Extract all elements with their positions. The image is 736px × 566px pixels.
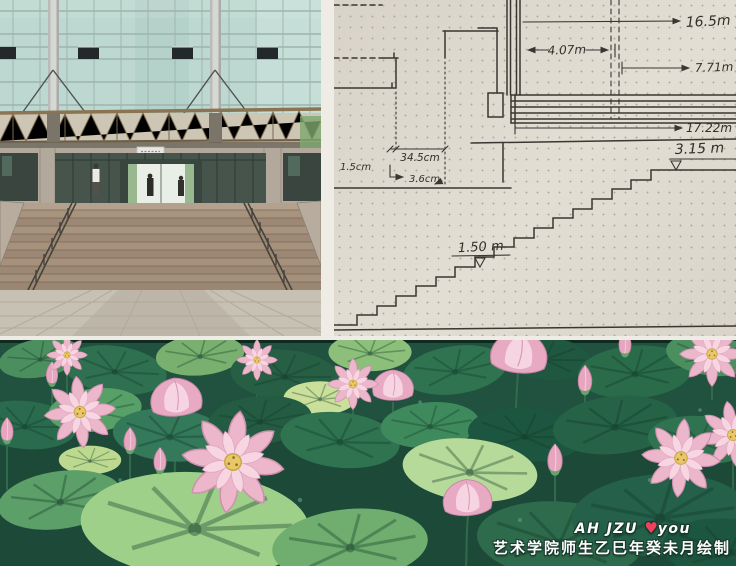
collage-gutter-vertical: [321, 0, 334, 336]
dim-label-mid-span: 7.71m: [695, 60, 734, 75]
building-photo-panel: [0, 0, 321, 336]
level-mid: 1.50 m: [452, 239, 510, 267]
dim-label-tread: 34.5cm: [400, 152, 439, 164]
measurement-sketch-art: 16.5m 4.07m 7.71m 17.22m 3.15: [334, 0, 736, 336]
plaza-pavement: [0, 290, 321, 336]
level-upper: 3.15 m: [670, 140, 736, 170]
building-photo-art: [0, 0, 321, 336]
level-label-mid: 1.50 m: [458, 239, 504, 256]
photo-collage: 16.5m 4.07m 7.71m 17.22m 3.15: [0, 0, 736, 566]
level-label-upper: 3.15 m: [675, 140, 725, 158]
level-marker-icon: [671, 161, 681, 170]
mural-caption-line1: AH JZU ♥you: [493, 519, 731, 539]
stair-profile-drawing: [334, 170, 736, 330]
entrance-canopy: [0, 109, 321, 150]
dim-label-facade-span: 17.22m: [686, 121, 732, 135]
caption-en2-text: you: [658, 521, 691, 537]
caption-en-text: AH JZU: [575, 521, 638, 537]
heart-icon: ♥: [644, 519, 657, 537]
level-marker-icon: [475, 258, 485, 267]
dimension-upper-span: 4.07m: [528, 42, 608, 57]
dimension-mid-span: 7.71m: [622, 60, 734, 75]
measurement-sketch-panel: 16.5m 4.07m 7.71m 17.22m 3.15: [334, 0, 736, 336]
dim-label-nosing: 1.5cm: [340, 162, 371, 173]
stone-staircase: [0, 203, 321, 290]
dim-label-upper-span: 4.07m: [547, 42, 586, 57]
dim-label-riser: 3.6cm: [409, 174, 440, 185]
mural-caption-line2: 艺术学院师生乙巳年癸未月绘制: [493, 539, 731, 558]
mural-caption: AH JZU ♥you 艺术学院师生乙巳年癸未月绘制: [493, 519, 731, 558]
entrance-doors: [55, 153, 266, 205]
lotus-mural-panel: AH JZU ♥you 艺术学院师生乙巳年癸未月绘制: [0, 340, 736, 566]
dimension-overall-height: 16.5m: [523, 13, 731, 31]
dim-label-overall-height: 16.5m: [685, 13, 731, 31]
